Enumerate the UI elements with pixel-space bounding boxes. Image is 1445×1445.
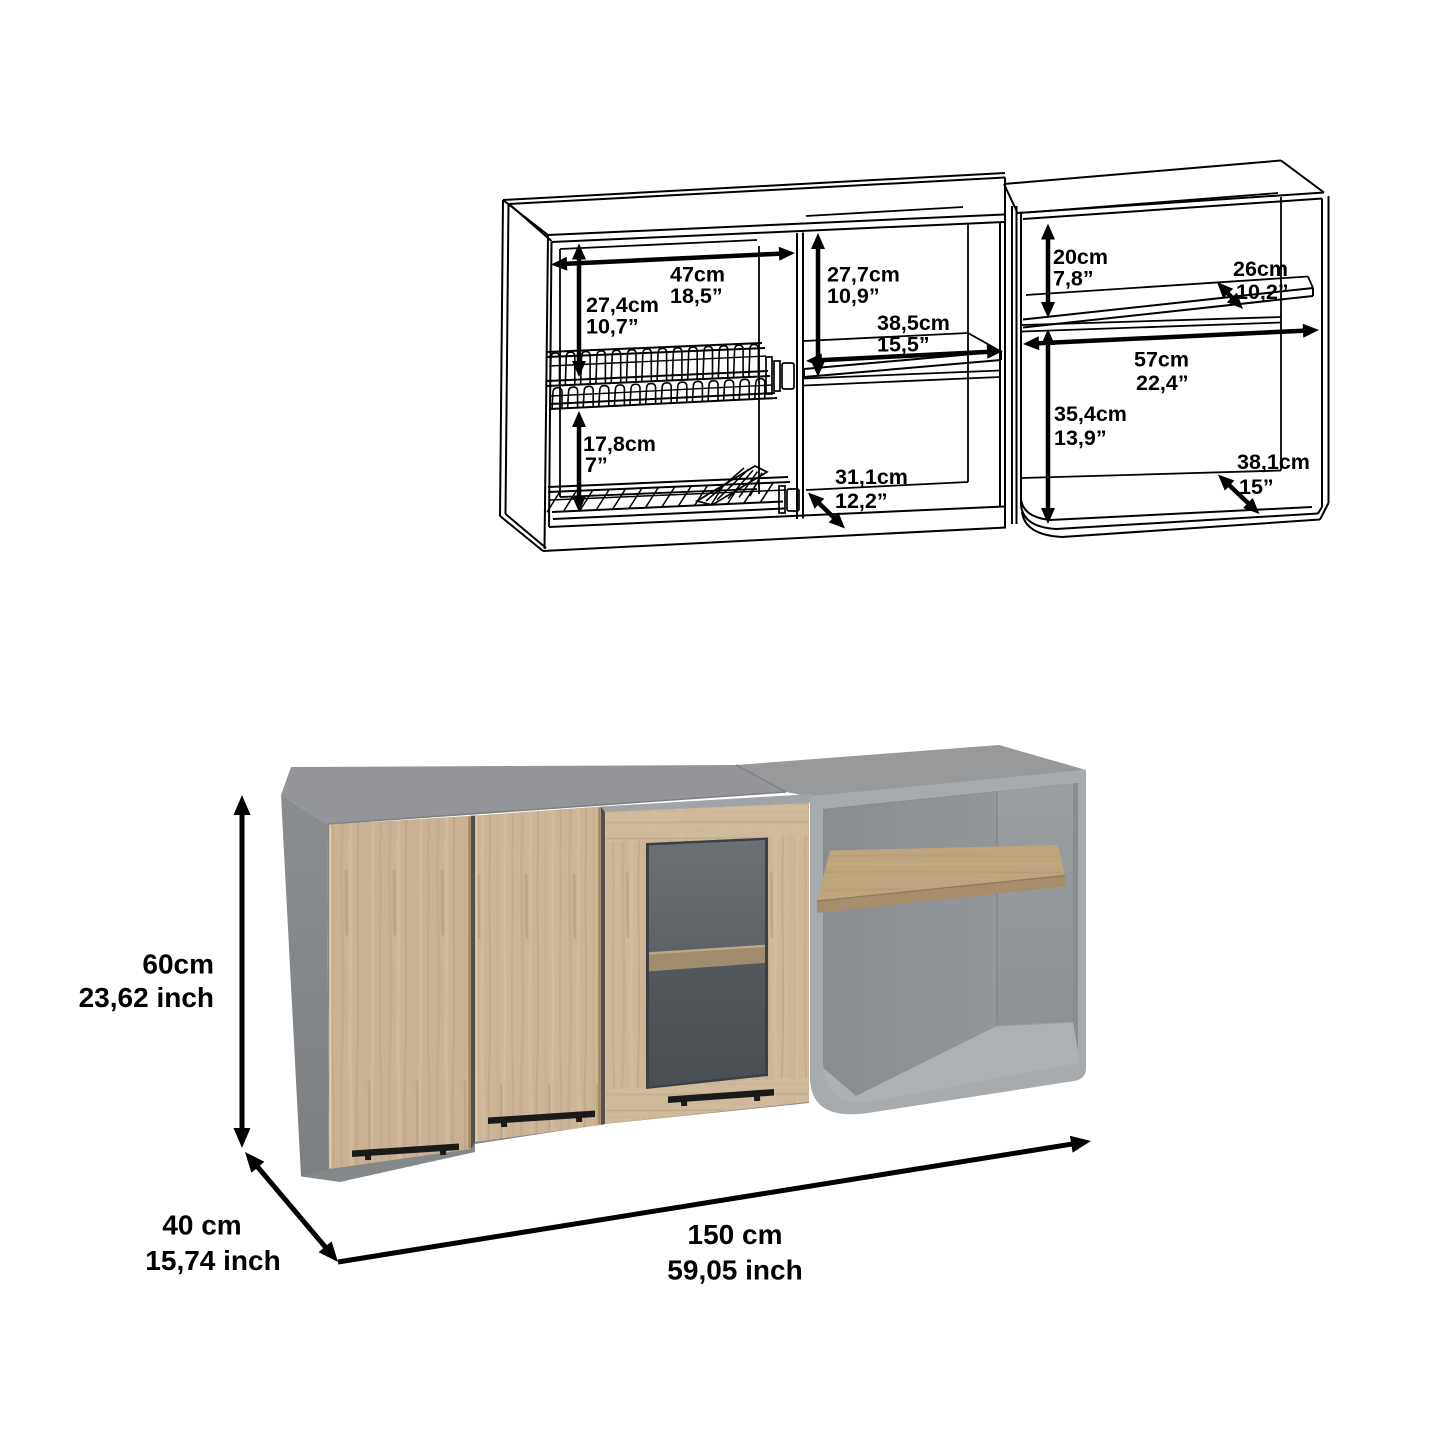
svg-text:27,4cm: 27,4cm <box>586 293 659 317</box>
svg-text:27,7cm: 27,7cm <box>827 263 900 287</box>
svg-text:38,5cm: 38,5cm <box>877 311 950 335</box>
svg-text:57cm: 57cm <box>1134 348 1189 372</box>
svg-text:13,9”: 13,9” <box>1054 426 1107 450</box>
svg-text:10,2”: 10,2” <box>1236 280 1289 304</box>
svg-text:15,5”: 15,5” <box>877 333 930 357</box>
svg-text:15”: 15” <box>1239 475 1274 499</box>
svg-text:47cm: 47cm <box>670 263 725 287</box>
svg-text:12,2”: 12,2” <box>835 489 888 513</box>
svg-text:15,74 inch: 15,74 inch <box>145 1245 280 1276</box>
svg-text:26cm: 26cm <box>1233 257 1288 281</box>
svg-text:31,1cm: 31,1cm <box>835 465 908 489</box>
svg-text:59,05 inch: 59,05 inch <box>667 1254 802 1285</box>
svg-text:7,8”: 7,8” <box>1053 267 1094 291</box>
svg-text:23,62 inch: 23,62 inch <box>79 982 214 1013</box>
svg-text:18,5”: 18,5” <box>670 284 723 308</box>
svg-text:40 cm: 40 cm <box>162 1209 241 1240</box>
svg-text:20cm: 20cm <box>1053 245 1108 269</box>
svg-text:10,7”: 10,7” <box>586 315 639 339</box>
svg-text:7”: 7” <box>585 453 608 477</box>
svg-text:38,1cm: 38,1cm <box>1237 450 1310 474</box>
svg-text:22,4”: 22,4” <box>1136 371 1189 395</box>
svg-text:60cm: 60cm <box>142 948 214 979</box>
svg-text:35,4cm: 35,4cm <box>1054 402 1127 426</box>
svg-text:10,9”: 10,9” <box>827 284 880 308</box>
svg-text:150 cm: 150 cm <box>688 1219 783 1250</box>
